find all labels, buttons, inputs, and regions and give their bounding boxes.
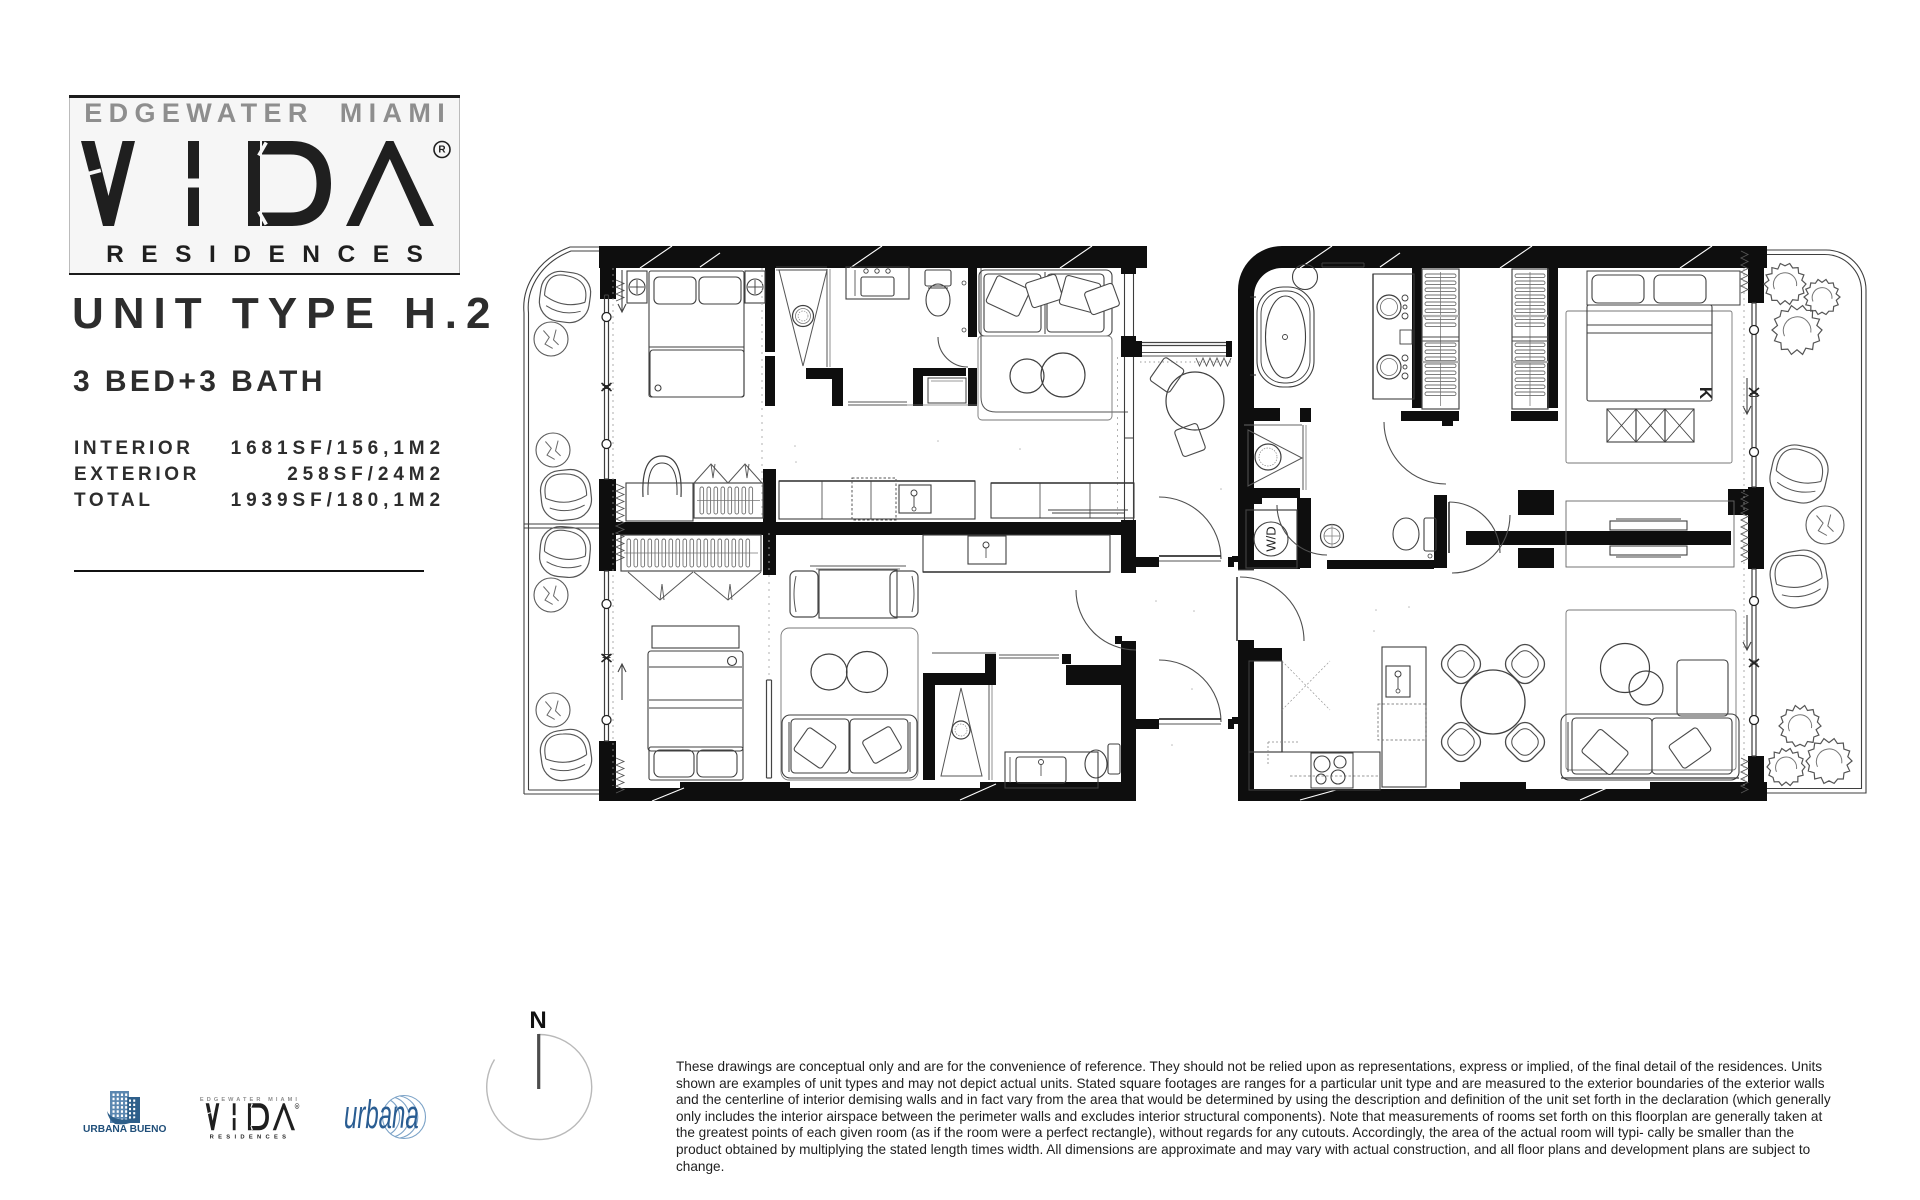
svg-text:R: R (296, 1104, 298, 1108)
svg-text:R: R (438, 145, 446, 156)
svg-text:RESIDENCES: RESIDENCES (210, 1135, 291, 1141)
svg-text:N: N (529, 1007, 546, 1034)
svg-text:K: K (1696, 387, 1715, 400)
svg-text:W/D: W/D (1264, 526, 1279, 551)
svg-text:urbana: urbana (344, 1092, 419, 1137)
svg-text:EDGEWATER MIAMI: EDGEWATER MIAMI (200, 1097, 300, 1103)
